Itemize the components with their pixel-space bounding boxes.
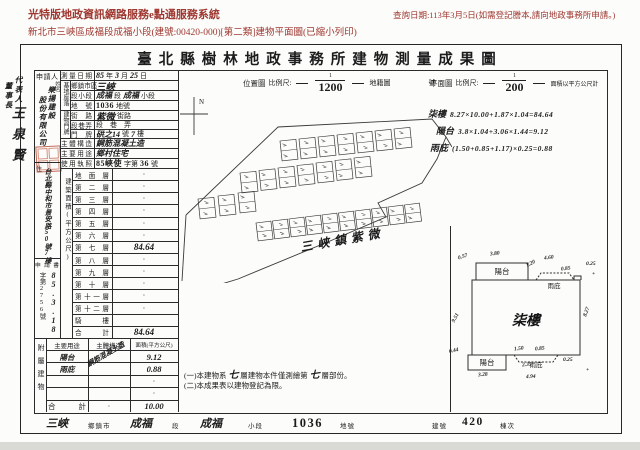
label-char: 計 [79,401,87,412]
applicant-address: 台北縣中和市景安路50號7樓 [43,168,50,264]
calc-name: 柒樓 [428,109,446,119]
floor-row-value: · [112,205,176,217]
floor-row-value: · [112,254,176,266]
label-char: 四 [89,206,96,216]
floor-row-label: 第五層 [75,219,109,228]
scale-word: 比例尺: [456,78,479,88]
floor-area-section-label: 建築面積(平方公尺) [62,178,72,262]
label-char: 層 [102,242,109,252]
floor-plan: 陽台 雨庇 陽台 雨庇 柒樓 0.573.801.204.600.850.258… [440,235,625,390]
top-canopy-outline [536,273,574,280]
scanned-survey-document-page: 光特版地政資訊網路服務e點通服務系統 查詢日期:113年3月5日(如需登記謄本,… [0,0,640,450]
scale-denominator: 200 [505,82,523,92]
label-char: 街 [71,110,78,120]
floor-row-label: 第八層 [75,255,109,264]
dimension-label: 2.35 [522,362,532,369]
label-char: 層 [102,182,109,192]
label-char: 層 [102,230,109,240]
annex-section-label: 附屬建物 [36,344,46,396]
floor-row-value: 84.64 [112,241,176,253]
info-row-label: 街路 [71,112,92,119]
floor-row-value: · [112,229,176,241]
label-char: 六 [89,230,96,240]
annex-row-area: 0.88 [130,363,178,375]
label-char: 第 [75,279,82,289]
building-footprint [405,203,422,223]
building-footprint [273,219,290,239]
label-char: 號 [85,100,92,110]
label-char: 構 [77,138,84,148]
printed-value: 日 [140,71,147,81]
printed-value: 36 [140,159,149,168]
dash [533,83,545,84]
document-subtitle: 新北市三峽區成福段成福小段(建號:00420-000)[第二類]建物平面圖(已縮… [28,24,357,38]
location-map-label: 位置圖 [243,78,266,89]
dimension-label: 4.60 [544,255,554,262]
building-footprint [335,159,353,181]
floor-row-value: · [112,169,176,181]
building-footprints [198,127,422,241]
label-char: 請 [44,260,50,269]
dimension-label: 0.25 [586,261,596,267]
building-footprint [354,156,372,178]
calc-line: 雨庇(1.50+0.85+1.17)×0.25=0.88 [430,138,553,156]
floor-row-label: 第十一層 [75,291,109,300]
label-char: 地 [71,100,78,110]
cadastral-label: 地籍圖 [369,78,390,88]
label-char: 層 [102,170,109,180]
floor-row-label: 第三層 [75,194,109,203]
annex-header: 主要用途 [47,341,87,350]
label-char: 第 [75,242,82,252]
dimension-label: 4.94 [526,374,536,380]
label-char: 要 [69,148,76,158]
label-char: 鄉 [71,80,78,90]
label-char: 主 [61,148,68,158]
floor-row-label: 地面層 [75,170,109,179]
info-row-label: 段巷弄 [71,122,92,128]
label-char: 市 [84,80,91,90]
label-char: 執 [77,158,84,168]
building-footprint [256,221,273,241]
scan-edge-shadow [0,442,640,450]
label-char: 一 [93,291,100,301]
info-row-label: 鄉鎮市區 [71,82,92,89]
label-char: 段 [85,90,92,100]
label-char: 騎 [75,315,82,325]
floor-row-value: · [112,193,176,205]
footer-label: 鄉鎮市 [88,420,111,430]
building-footprint [337,133,355,155]
floor-row-label: 第六層 [75,231,109,240]
dimension-label: + [592,271,595,277]
handwritten-value: 成福 [123,90,139,101]
note-text: 層部份。 [320,371,352,380]
rule-v-3 [178,70,179,412]
dimension-label: 0.25 [563,357,573,363]
label-char: 第 [75,267,82,277]
footer-label: 地號 [340,420,355,430]
floor-row-label: 第十二層 [75,304,109,313]
info-row-value: 成福段成福小段 [96,91,176,101]
rule-v-4 [450,226,451,412]
rule-v-5 [72,168,73,338]
system-title: 光特版地政資訊網路服務e點通服務系統 [28,6,220,22]
site-map-drawing: N [180,95,452,283]
room-label: 柒樓 [512,312,542,329]
label-char: 五 [89,218,96,228]
printed-value: 號 [151,159,158,169]
building-footprint [299,137,317,159]
location-map-scale: 位置圖 比例尺: 1 1200 地籍圖 號 [243,74,435,92]
label-char: 鎮 [78,80,85,90]
label-char: 途 [85,148,92,158]
note-text: (二)本成果表以建物登記為限。 [184,381,287,390]
bottom-balcony-label: 陽台 [480,357,495,367]
printed-value: 地號 [116,101,130,111]
rule-h-11 [34,258,60,259]
label-char: 層 [102,291,109,301]
dimension-label: + [586,367,589,373]
label-char: 十 [89,279,96,289]
annex-row-area: · [130,375,178,387]
handwritten-value: 成福 [96,90,112,101]
label-char: 體 [69,138,76,148]
info-row-value: 85峽使字第36號 [96,159,176,169]
dimension-label: 3.28 [478,372,488,379]
label-char: 請 [44,72,51,82]
group-door-label: 建物門牌 [61,111,70,135]
representative-role: 代表人 [13,76,24,105]
bottom-canopy-outline [514,355,558,362]
rule-h-10 [34,162,60,163]
annex-row-use: 合計 [48,401,86,413]
footer-value-hand: 三峽 [46,415,68,431]
scale-word: 比例尺: [269,78,292,88]
info-row-label: 主要用途 [61,150,92,157]
footer-value-hand: 成福 [200,415,222,431]
label-char: 主 [61,138,68,148]
receipt-number: 字第2756號 [36,272,46,320]
printed-value: 月 [121,71,128,81]
label-char: 第 [75,182,82,192]
label-char: 層 [102,194,109,204]
annex-row-area: 10.00 [130,400,178,412]
label-char: 造 [85,138,92,148]
note-handwritten: 七 [310,370,320,381]
label-char: 計 [102,327,109,337]
label-char: 第 [75,303,82,313]
annex-row-area: · [130,388,178,400]
top-canopy-label: 雨庇 [548,281,562,290]
floor-row-label: 合計 [75,328,109,337]
handwritten-value: 3 [115,71,119,80]
footer-label: 段 [172,420,180,430]
footer-label: 棟次 [500,420,515,430]
calc-formula: (1.50+0.85+1.17)×0.25=0.88 [452,144,553,153]
printed-value: 字第 [124,159,138,169]
handwritten-value: 25 [130,71,138,80]
label-char: 書 [53,260,59,269]
building-footprint [218,194,236,216]
footer-value-typed: 420 [462,416,484,428]
building-footprint [322,213,339,233]
info-row-label: 地號 [71,102,92,109]
calc-name: 雨庇 [430,143,448,153]
info-row-value: 三峽 [96,81,176,91]
label-char: 門 [71,129,78,139]
label-char: 合 [48,401,56,412]
top-right-step [574,276,581,280]
rule-v-0 [60,70,61,338]
document-title: 臺北縣樹林地政事務所建物測量成果圖 [34,48,606,69]
label-char: 申 [36,72,43,82]
building-footprint [280,139,298,161]
dash [483,83,495,84]
label-char: 小 [78,90,85,100]
floor-row-label: 第七層 [75,243,109,252]
calc-name: 陽台 [436,126,454,136]
annex-row-area: 9.12 [130,351,178,363]
building-footprint [394,127,412,149]
floor-row-value: 84.64 [112,326,176,338]
info-row-value: 紫微 街路 [96,111,176,121]
info-row-value: 鋼筋混凝土造 [96,139,176,149]
unit-note: 面積以平方公尺計 [550,79,598,88]
calc-formula: 3.8×1.04+3.06×1.44=9.12 [458,127,548,136]
address-label: 住 [36,164,42,173]
label-char: 地 [75,170,82,180]
label-char: 期 [85,70,92,80]
label-char: 申 [35,260,41,269]
label-char: 二 [93,303,100,313]
floor-row-value: · [112,266,176,278]
label-char: 面 [89,170,96,180]
plan-scale-fraction: 1 200 [502,74,526,92]
location-scale-fraction: 1 1200 [315,74,345,92]
dash [296,83,308,84]
label-char: 第 [75,206,82,216]
label-char: 第 [75,291,82,301]
annex-row-use: 雨庇 [48,363,86,375]
scale-numerator: 1 [513,74,516,79]
building-footprint [356,131,374,153]
representative-name: 王泉賢 [8,106,27,169]
note-line: (二)本成果表以建物登記為限。 [184,380,287,391]
label-char: 二 [89,182,96,192]
north-label: N [199,98,204,106]
label-char: 路 [85,110,92,120]
info-row-value: 鄉村住宅 [96,149,176,159]
building-footprint [375,129,393,151]
label-char: 照 [85,158,92,168]
calc-formula: 8.27×10.00+1.87×1.04=84.64 [450,110,553,119]
note-text: 層建物本件僅測繪第 [238,371,309,380]
floor-plan-scale: 平面圖 比例尺: 1 200 面積以平方公尺計 [430,74,598,92]
floor-row-label: 第四層 [75,206,109,215]
label-char: 第 [75,230,82,240]
printed-value: 小段 [141,91,155,101]
building-footprint [297,164,315,186]
dimension-label: 0.85 [535,346,545,353]
floor-row-label: 第十層 [75,279,109,288]
group-site-label: 基地座落 [61,82,70,106]
annex-row-mid: · [88,401,130,413]
label-char: 用 [77,148,84,158]
label-char: 樓 [102,315,109,325]
footer-label: 建號 [432,420,447,430]
label-char: 第 [75,194,82,204]
printed-value: 85峽使 [96,158,122,169]
building-footprint [306,215,323,235]
label-char: 合 [75,327,82,337]
label-char: 十 [84,303,91,313]
printed-value: 街路 [117,111,131,121]
building-footprint [388,205,405,225]
floor-row-label: 第二層 [75,182,109,191]
building-footprint [278,166,296,188]
floor-row-value: · [112,290,176,302]
label-char: 層 [102,279,109,289]
annex-row-use: 陽台 [48,351,86,363]
label-char: 九 [89,267,96,277]
info-row-label: 段小段 [71,92,92,99]
label-char: 層 [102,267,109,277]
floor-row-value: · [112,302,176,314]
scale-numerator: 1 [329,74,332,79]
building-footprint [240,171,258,193]
label-char: 使 [61,158,68,168]
scale-denominator: 1200 [318,82,342,92]
floor-row-value: · [112,181,176,193]
calc-line: 陽台3.8×1.04+3.06×1.44=9.12 [436,121,549,139]
label-char: 量 [69,70,76,80]
floor-row-label: 騎樓 [75,316,109,325]
building-footprint [316,161,334,183]
parcel-boundary-left [182,215,186,281]
info-row-label: 測量日期 [61,72,92,79]
label-char: 層 [102,218,109,228]
site-location-map: N 三峽鎮紫微 [180,95,452,283]
dimension-label: 3.80 [490,251,500,258]
label-char: 巷 [78,120,85,130]
label-char: 段 [71,90,78,100]
building-footprint [259,169,277,191]
building-footprint [238,191,256,213]
label-char: 層 [102,206,109,216]
label-char: 第 [75,255,82,265]
label-char: 七 [89,242,96,252]
floor-row-value: · [112,278,176,290]
query-date: 查詢日期:113年3月5日(如需登記謄本,請向地政事務所申請。) [393,9,615,21]
label-char: 用 [69,158,76,168]
label-char: 三 [89,194,96,204]
label-char: 十 [84,291,91,301]
label-char: 層 [102,303,109,313]
dimension-label: 1.50 [514,346,524,353]
calc-line: 柒樓8.27×10.00+1.87×1.04=84.64 [428,104,553,122]
printed-value: 段 [114,91,121,101]
info-row-label: 門牌 [71,131,92,137]
receipt-date: 85.3.18 [49,271,58,334]
floor-row-label: 第九層 [75,267,109,276]
note-text: (一)本建物系 [184,371,228,380]
applicant-name-col2: 股份有限公司 [37,96,48,147]
footer-label: 小段 [248,420,263,430]
footer-value-typed: 1036 [292,416,323,431]
floor-plan-label: 平面圖 [430,78,453,89]
label-char: 牌 [85,129,92,139]
floor-row-value: · [112,217,176,229]
dash [352,83,364,84]
note-line: (一)本建物系 七 層建物本件僅測繪第 七 層部份。 [184,366,352,381]
label-char: 八 [89,255,96,265]
receipt-label: 申請書 [35,260,59,269]
building-footprint [318,135,336,157]
label-char: 第 [75,218,82,228]
info-row-label: 主體構造 [61,140,92,147]
top-balcony-label: 陽台 [495,266,510,276]
label-char: 測 [61,70,68,80]
building-footprint [289,217,306,237]
footer-value-hand: 成福 [130,415,152,431]
label-char: 日 [77,70,84,80]
info-row-label: 使用執照 [61,160,92,167]
parcel-boundary [186,119,446,283]
label-char: 層 [102,255,109,265]
